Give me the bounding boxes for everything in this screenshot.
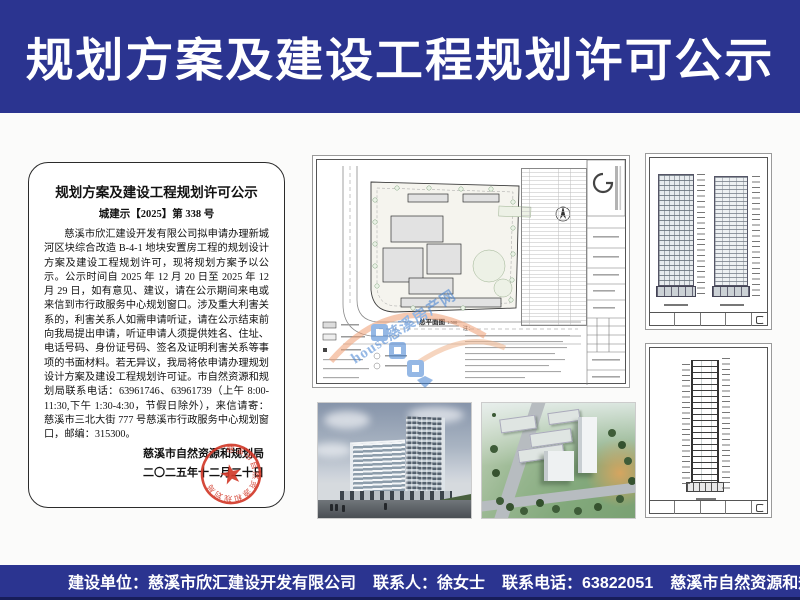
notice-box: 规划方案及建设工程规划许可公示 城建示【2025】第 338 号 慈溪市欣汇建设…	[28, 162, 285, 508]
footer-banner: 建设单位：慈溪市欣汇建设开发有限公司 联系人：徐女士 联系电话：63822051…	[0, 565, 800, 600]
elevation-tower-left	[658, 174, 694, 286]
section-ticks-right	[722, 358, 730, 492]
section-base	[686, 482, 724, 492]
tree-cluster	[492, 413, 496, 417]
notice-body: 慈溪市欣汇建设开发有限公司拟申请办理新城河区块综合改造 B-4-1 地块安置房工…	[44, 228, 269, 442]
title-block-cell	[675, 501, 701, 514]
footer-supervisor: 慈溪市自然资源和规划局监制	[670, 569, 800, 593]
title-block	[587, 160, 625, 385]
aerial-midrise	[544, 451, 574, 481]
footer-info-line: 建设单位：慈溪市欣汇建设开发有限公司 联系人：徐女士 联系电话：63822051…	[0, 569, 800, 593]
cloud	[324, 411, 370, 429]
elevation-caption-left	[664, 304, 688, 306]
title-block-cell	[649, 501, 675, 514]
footer-contact-person: 联系人：徐女士	[373, 569, 485, 593]
title-block-logo-icon	[752, 501, 768, 514]
elevation-tower-right	[714, 176, 748, 286]
section-title-block	[649, 500, 768, 514]
site-plan-scale: 1:500	[447, 320, 458, 325]
elevation-podium-left	[656, 286, 696, 297]
official-seal: 慈溪市自然资源和规划局	[192, 435, 270, 513]
poster: { "header": { "title": "规划方案及建设工程规划许可公示"…	[0, 0, 800, 600]
notice-title: 规划方案及建设工程规划许可公示	[37, 181, 276, 201]
aerial-high-tower	[578, 417, 597, 473]
notes-label: 注：	[463, 325, 473, 332]
title-block-cell	[649, 313, 675, 326]
seal-star-icon	[219, 462, 243, 485]
elevation-sheet	[645, 153, 772, 330]
pedestrian	[335, 504, 338, 511]
rendered-high-tower	[406, 416, 445, 501]
pedestrian	[330, 504, 333, 511]
title-block-cell	[726, 313, 752, 326]
cloud	[317, 443, 352, 457]
footer-contact-phone: 联系电话：63822051	[502, 569, 653, 593]
notice-doc-number: 城建示【2025】第 338 号	[29, 206, 284, 221]
pedestrian	[342, 505, 345, 512]
design-institute-logo	[594, 166, 621, 210]
title-block-text-placeholders	[592, 236, 620, 378]
footer-construction-unit: 建设单位：慈溪市欣汇建设开发有限公司	[68, 569, 356, 593]
economic-indicators-table	[521, 168, 587, 326]
legend	[323, 322, 407, 378]
title-block-cell	[701, 313, 727, 326]
elevation-podium-right	[712, 286, 750, 297]
site-plan-title: 总平面图	[419, 317, 446, 326]
street-view-rendering	[317, 402, 472, 519]
aerial-view-rendering	[481, 402, 636, 519]
title-block-cell	[675, 313, 701, 326]
notes-text-placeholders	[465, 335, 570, 378]
pedestrian	[384, 503, 387, 510]
header-banner: 规划方案及建设工程规划许可公示	[0, 0, 800, 113]
poster-title: 规划方案及建设工程规划许可公示	[26, 24, 775, 90]
title-block-cell	[701, 501, 727, 514]
level-ticks-right	[752, 176, 760, 297]
section-tower	[691, 360, 719, 482]
site-plan-sheet: 总平面图 1:500 注： house慈溪	[312, 155, 630, 388]
elevation-title-block	[649, 312, 768, 326]
section-ticks-left	[682, 364, 690, 484]
elevation-caption-right	[720, 304, 744, 306]
section-sheet	[645, 343, 772, 518]
title-block-cell	[726, 501, 752, 514]
title-block-logo-icon	[752, 313, 768, 326]
level-ticks-left	[697, 174, 705, 297]
